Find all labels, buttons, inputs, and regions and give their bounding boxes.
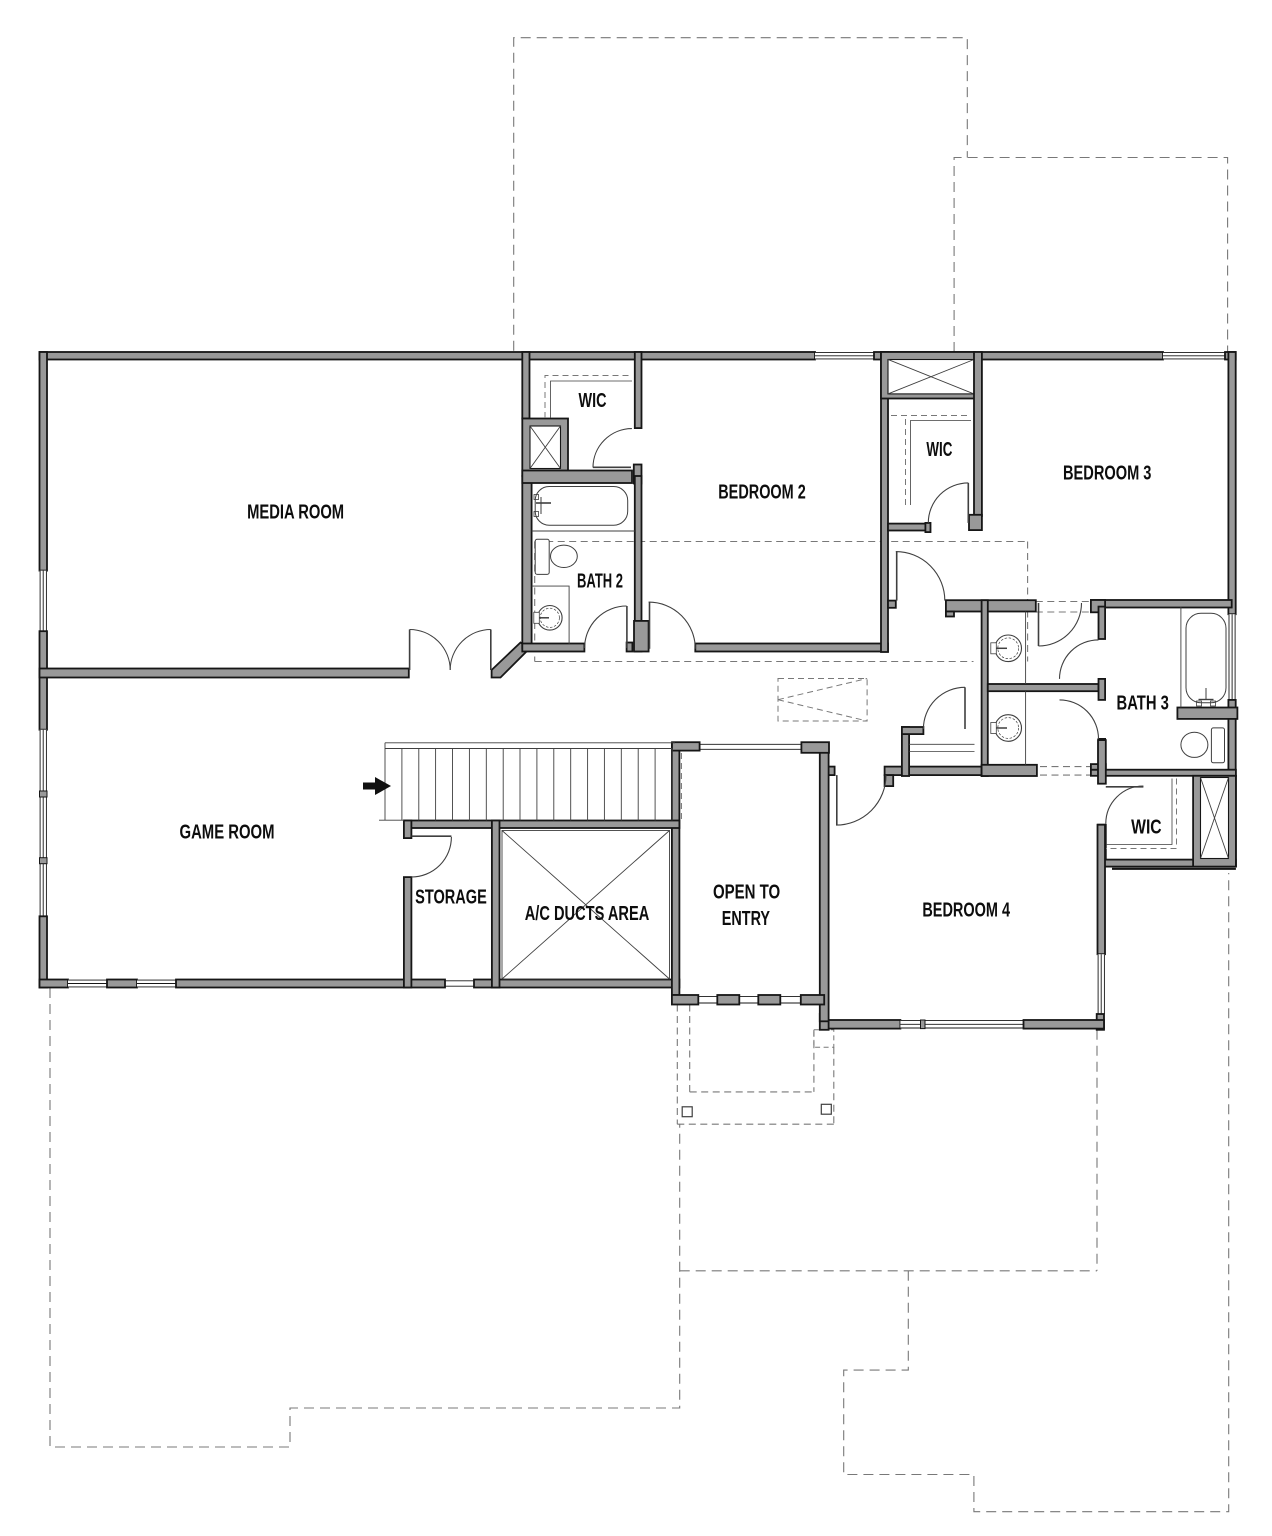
svg-text:WIC: WIC bbox=[1131, 816, 1162, 838]
svg-text:OPEN TO: OPEN TO bbox=[713, 881, 780, 903]
svg-text:GAME ROOM: GAME ROOM bbox=[180, 822, 275, 844]
svg-text:BEDROOM 2: BEDROOM 2 bbox=[718, 482, 806, 504]
svg-text:WIC: WIC bbox=[926, 439, 952, 461]
svg-text:ENTRY: ENTRY bbox=[722, 908, 771, 930]
svg-text:STORAGE: STORAGE bbox=[415, 887, 487, 909]
svg-text:BATH 3: BATH 3 bbox=[1117, 692, 1169, 714]
svg-text:WIC: WIC bbox=[579, 390, 607, 412]
svg-text:BATH 2: BATH 2 bbox=[577, 570, 623, 592]
svg-text:BEDROOM 3: BEDROOM 3 bbox=[1063, 462, 1151, 484]
svg-text:A/C DUCTS AREA: A/C DUCTS AREA bbox=[525, 903, 650, 925]
svg-text:BEDROOM 4: BEDROOM 4 bbox=[922, 899, 1010, 921]
svg-text:MEDIA ROOM: MEDIA ROOM bbox=[247, 502, 344, 524]
